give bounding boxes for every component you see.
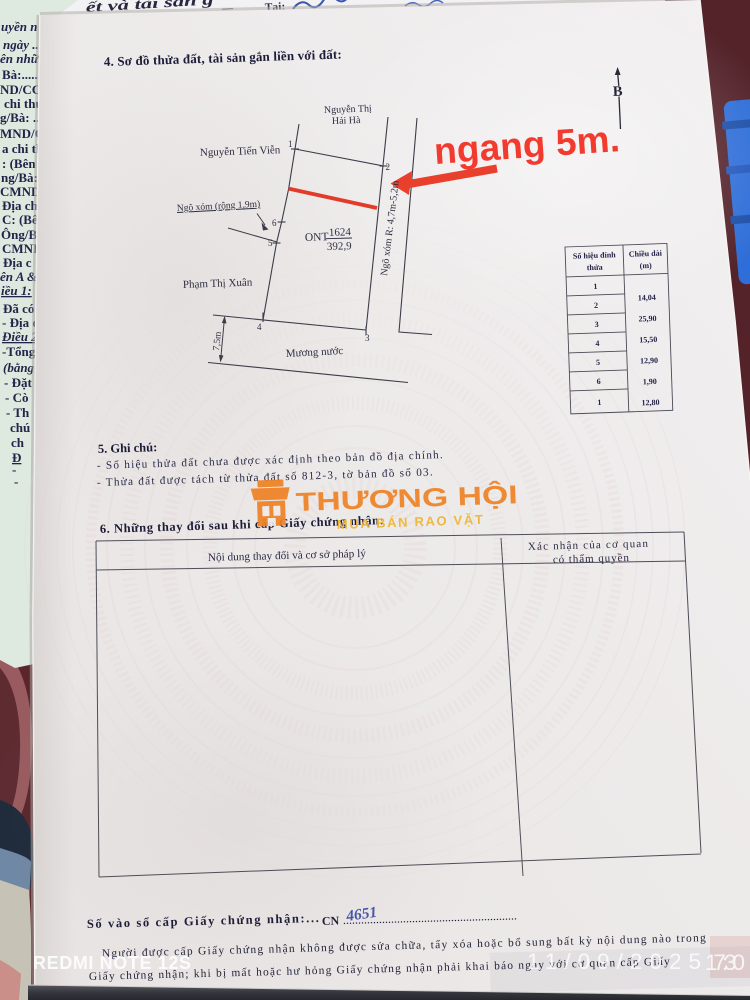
svg-text:ngày ..: ngày .. [3, 37, 39, 52]
svg-text:15,50: 15,50 [639, 335, 657, 345]
svg-text:CN: CN [322, 914, 340, 928]
svg-text:5. Ghi chú:: 5. Ghi chú: [98, 440, 158, 456]
svg-text:4: 4 [595, 339, 599, 348]
svg-text:g/Bà: ..: g/Bà: .. [0, 110, 39, 125]
svg-text:6: 6 [272, 218, 277, 228]
svg-text:4: 4 [257, 322, 262, 332]
svg-text:REDMI NOTE 12S: REDMI NOTE 12S [33, 953, 191, 973]
svg-text:Nguyễn Thị: Nguyễn Thị [324, 103, 372, 116]
svg-text:ND/CC: ND/CC [0, 82, 41, 97]
svg-text:1: 1 [288, 139, 293, 149]
svg-text:1: 1 [593, 282, 597, 291]
svg-text:(m): (m) [640, 261, 653, 270]
svg-text:12,90: 12,90 [640, 356, 658, 366]
svg-text:1,90: 1,90 [643, 377, 657, 386]
svg-text:thửa: thửa [587, 263, 603, 273]
svg-text:Bà:......: Bà:...... [2, 67, 41, 82]
svg-text:Hải Hà: Hải Hà [332, 115, 362, 127]
svg-text:5: 5 [596, 358, 600, 367]
svg-text:Phạm Thị Xuân: Phạm Thị Xuân [183, 277, 253, 291]
svg-text:6: 6 [597, 377, 601, 386]
svg-text:2: 2 [386, 162, 391, 172]
svg-text:có thẩm quyền: có thẩm quyền [553, 552, 630, 566]
svg-text:B: B [613, 84, 624, 100]
svg-text:ONT: ONT [305, 231, 329, 244]
svg-text:14,04: 14,04 [638, 293, 656, 303]
svg-text:1: 1 [597, 398, 601, 407]
svg-text:Số hiệu đỉnh: Số hiệu đỉnh [573, 250, 617, 261]
svg-text:5: 5 [268, 238, 273, 248]
svg-text:7,5m: 7,5m [212, 331, 224, 352]
svg-text:-: - [14, 474, 18, 489]
svg-text:392,9: 392,9 [327, 240, 353, 253]
svg-text:3: 3 [365, 333, 370, 343]
svg-text:ên nhữ: ên nhữ [0, 51, 40, 66]
svg-text:12,80: 12,80 [641, 398, 659, 408]
svg-text:Chiều dài: Chiều dài [629, 249, 663, 259]
svg-text:17:30: 17:30 [705, 950, 745, 975]
svg-text:3: 3 [595, 320, 599, 329]
svg-text:uyền n: uyền n [1, 19, 37, 34]
svg-text:1624: 1624 [329, 226, 352, 239]
svg-text:2: 2 [594, 301, 598, 310]
svg-text:25,90: 25,90 [638, 314, 656, 324]
